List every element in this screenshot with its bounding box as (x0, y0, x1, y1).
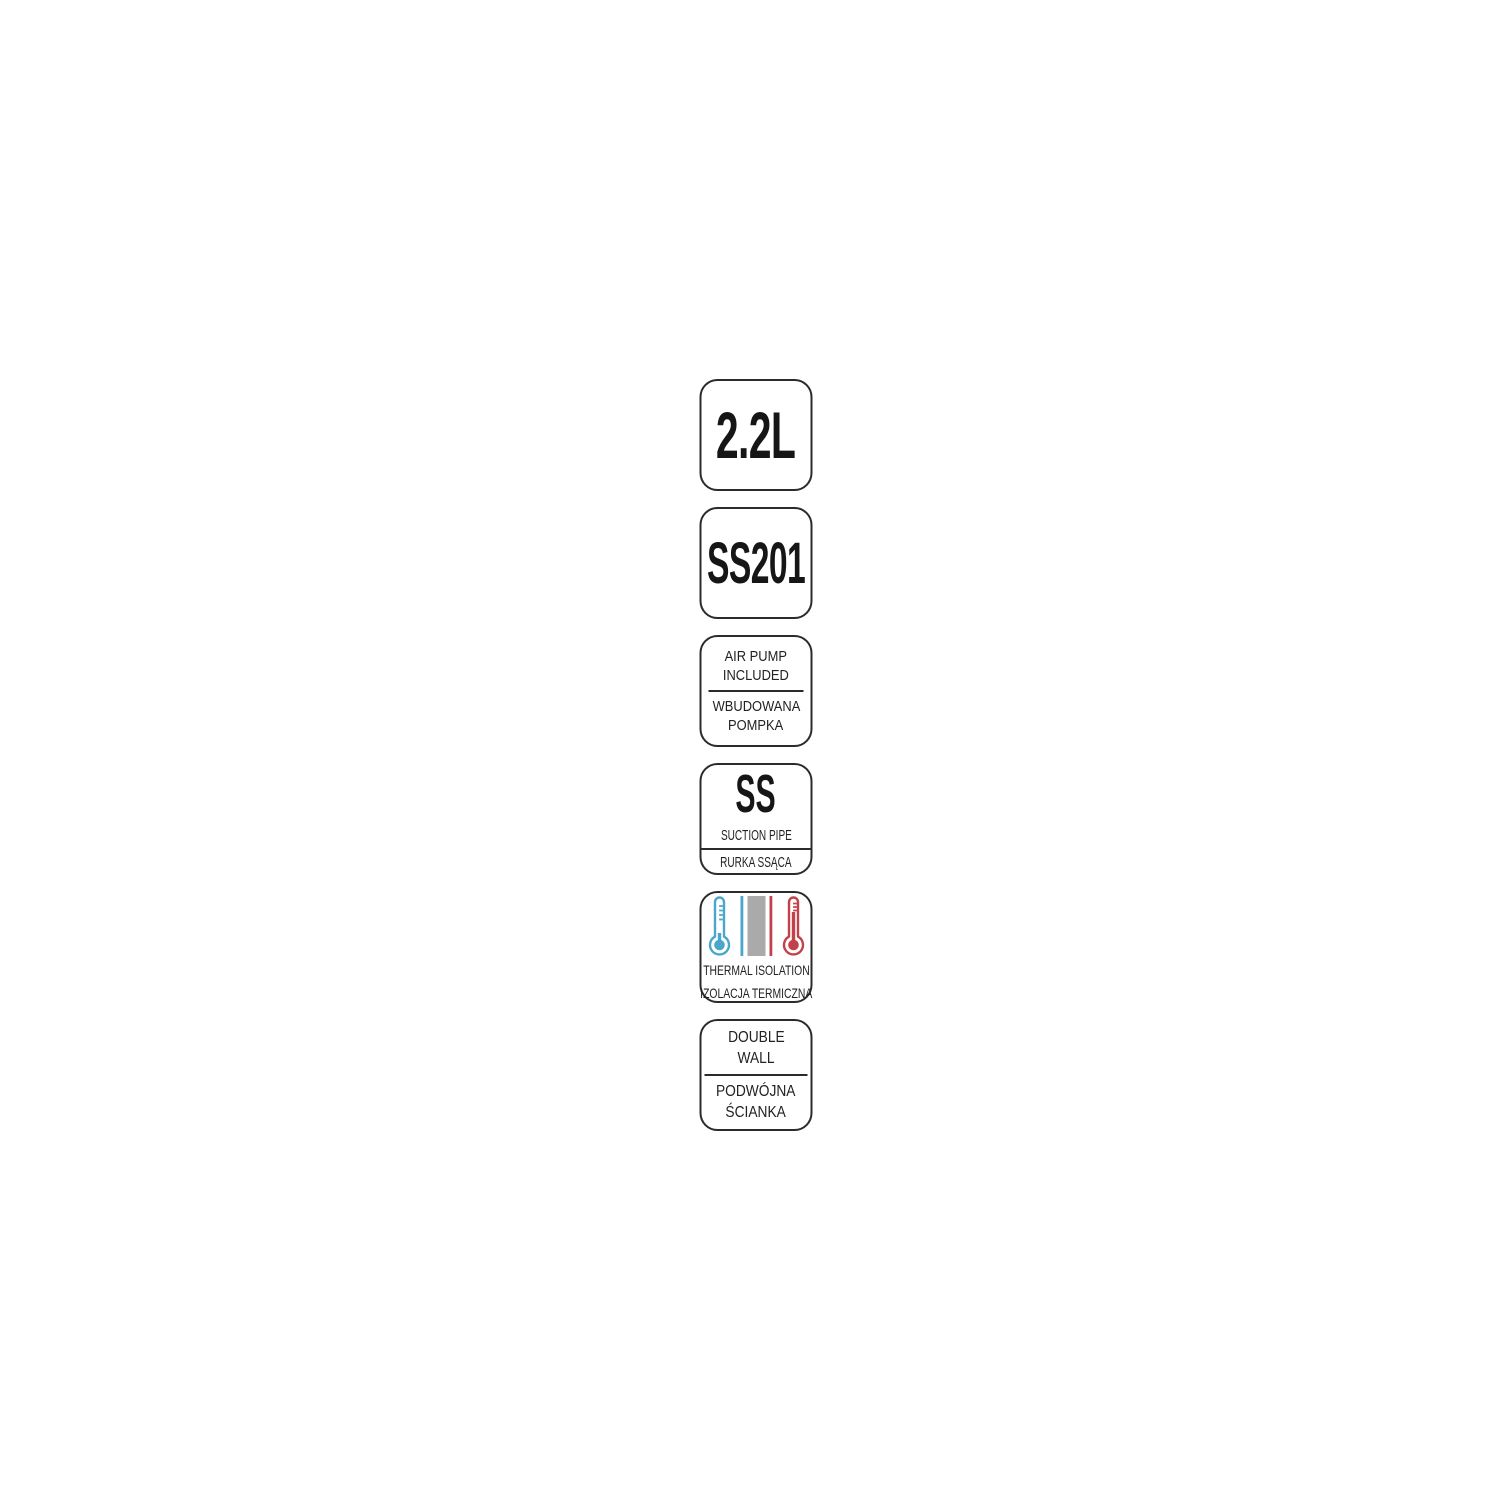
thermal-isolation-text-en: THERMAL ISOLATION (703, 962, 810, 978)
language-divider (709, 690, 804, 692)
capacity-badge: 2.2L (700, 379, 813, 491)
double-wall-text-pl-line2: ŚCIANKA (726, 1102, 786, 1123)
double-wall-text-pl-line1: PODWÓJNA (716, 1081, 796, 1102)
thermal-isolation-text-pl: IZOLACJA TERMICZNA (700, 985, 812, 1001)
suction-pipe-material-label: SS (736, 769, 776, 819)
badge-column: 2.2L SS201 AIR PUMP INCLUDED WBUDOWANA P… (700, 379, 813, 1131)
thermal-isolation-badge: THERMAL ISOLATION IZOLACJA TERMICZNA (700, 891, 813, 1003)
language-divider (705, 1074, 808, 1076)
double-wall-text-en-line2: WALL (738, 1048, 775, 1069)
double-wall-text-en-line1: DOUBLE (728, 1027, 785, 1048)
steel-grade-label: SS201 (707, 530, 805, 597)
suction-pipe-text-en: SUCTION PIPE (721, 826, 792, 845)
air-pump-text-en-line1: AIR PUMP (725, 647, 787, 666)
air-pump-text-en-line2: INCLUDED (723, 666, 789, 685)
suction-pipe-badge: SS SUCTION PIPE RURKA SSĄCA (700, 763, 813, 875)
thermal-isolation-icon (706, 895, 806, 957)
steel-grade-badge: SS201 (700, 507, 813, 619)
air-pump-text-pl-line2: POMPKA (728, 716, 783, 735)
suction-pipe-text-pl: RURKA SSĄCA (720, 853, 791, 872)
hot-thermometer-icon (780, 895, 806, 957)
language-divider (702, 848, 811, 850)
product-pictogram-sheet: 2.2L SS201 AIR PUMP INCLUDED WBUDOWANA P… (0, 0, 1512, 1512)
air-pump-text-pl-line1: WBUDOWANA (712, 697, 800, 716)
wall-layers-icon (739, 896, 773, 956)
cold-thermometer-icon (706, 895, 732, 957)
double-wall-badge: DOUBLE WALL PODWÓJNA ŚCIANKA (700, 1019, 813, 1131)
capacity-label: 2.2L (716, 397, 795, 473)
air-pump-badge: AIR PUMP INCLUDED WBUDOWANA POMPKA (700, 635, 813, 747)
